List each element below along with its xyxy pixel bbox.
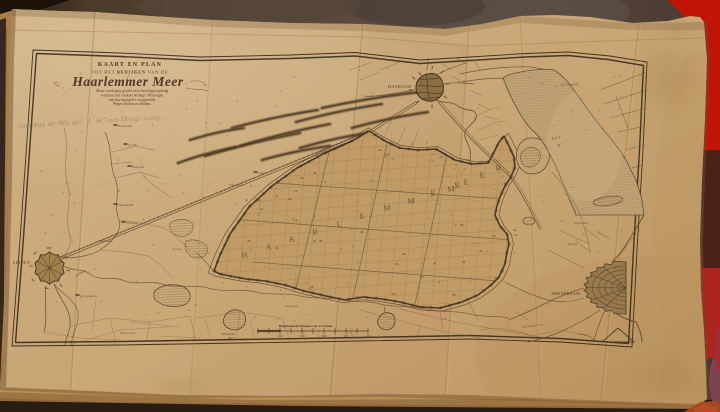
svg-text:11: 11: [245, 198, 249, 202]
svg-text:5000: 5000: [365, 335, 371, 338]
svg-text:34: 34: [310, 285, 314, 289]
svg-text:de Zilk: de Zilk: [128, 143, 138, 147]
svg-text:3000: 3000: [321, 335, 327, 338]
svg-text:44: 44: [275, 246, 279, 250]
svg-text:de Kaag: de Kaag: [172, 248, 182, 251]
svg-text:Haarlemmer Meer: Haarlemmer Meer: [71, 74, 184, 89]
svg-text:1000: 1000: [277, 335, 283, 338]
svg-text:14: 14: [294, 189, 298, 193]
svg-text:4: 4: [292, 217, 294, 221]
svg-text:Braassemer: Braassemer: [222, 333, 236, 336]
svg-text:41: 41: [462, 260, 466, 264]
svg-text:3: 3: [324, 180, 326, 184]
svg-text:Nieuwerkerk: Nieuwerkerk: [573, 222, 589, 225]
svg-text:11: 11: [514, 233, 518, 237]
svg-text:34: 34: [378, 148, 382, 152]
svg-text:11: 11: [260, 207, 264, 211]
svg-text:41: 41: [257, 198, 261, 202]
svg-text:Rhijnlandsche Roeden van 12 Vo: Rhijnlandsche Roeden van 12 Voeten.: [279, 324, 334, 328]
svg-text:44: 44: [460, 223, 464, 227]
svg-text:1: 1: [494, 276, 496, 280]
svg-text:11: 11: [466, 158, 470, 162]
svg-text:41: 41: [479, 249, 483, 253]
svg-text:Woubrugge: Woubrugge: [285, 305, 299, 308]
svg-text:4000: 4000: [343, 335, 349, 338]
svg-text:41: 41: [360, 230, 364, 234]
svg-text:M: M: [407, 196, 415, 206]
svg-text:4: 4: [385, 154, 387, 158]
svg-text:34: 34: [395, 262, 399, 266]
svg-text:3: 3: [370, 179, 372, 183]
svg-text:M: M: [383, 203, 391, 213]
svg-text:Meer: Meer: [227, 337, 235, 340]
svg-text:Lisse: Lisse: [258, 171, 265, 175]
svg-text:44: 44: [420, 275, 424, 279]
svg-text:Wegen Vaarten en Molens.: Wegen Vaarten en Molens.: [113, 102, 152, 106]
svg-text:34: 34: [439, 155, 443, 159]
svg-text:14: 14: [492, 234, 496, 238]
svg-text:AMSTERDAM: AMSTERDAM: [551, 291, 580, 296]
svg-text:de Leydsdorp: de Leydsdorp: [80, 294, 98, 298]
svg-text:HAARLEM: HAARLEM: [388, 84, 411, 89]
svg-text:Sassenheim: Sassenheim: [118, 203, 134, 207]
svg-text:waartusschen vierkant bevangt: waartusschen vierkant bevangt 100 morgen: [101, 93, 164, 97]
svg-text:Voorhout: Voorhout: [126, 221, 138, 225]
svg-text:44: 44: [288, 197, 292, 201]
svg-text:7: 7: [357, 209, 359, 213]
svg-text:7: 7: [502, 270, 504, 274]
svg-text:4: 4: [276, 194, 278, 198]
svg-text:7: 7: [426, 141, 428, 145]
svg-text:41: 41: [313, 239, 317, 243]
svg-text:4: 4: [433, 261, 435, 265]
svg-text:Rietwijk: Rietwijk: [567, 243, 578, 246]
svg-text:34: 34: [402, 252, 406, 256]
svg-text:Rijnsburg: Rijnsburg: [100, 239, 113, 243]
svg-text:1: 1: [455, 163, 457, 167]
svg-text:met bijvoeging der voorgesteld: met bijvoeging der voorgestelde: [109, 98, 156, 102]
svg-text:Lisser poel: Lisser poel: [230, 183, 244, 187]
svg-text:Noordwijk: Noordwijk: [118, 124, 132, 128]
svg-text:1: 1: [455, 223, 457, 227]
svg-text:2000: 2000: [299, 335, 305, 338]
svg-text:LEIDEN: LEIDEN: [13, 261, 30, 265]
svg-text:44: 44: [319, 239, 323, 243]
svg-text:34: 34: [247, 239, 251, 243]
svg-text:4: 4: [438, 280, 440, 284]
svg-text:41: 41: [513, 228, 517, 232]
svg-text:14: 14: [392, 292, 396, 296]
svg-text:14: 14: [294, 218, 298, 222]
svg-text:Alzoo voorloopig gesteld en in: Alzoo voorloopig gesteld en in kavelinge…: [96, 89, 169, 93]
svg-text:Hazerswoude: Hazerswoude: [119, 332, 136, 335]
svg-text:4: 4: [302, 159, 304, 163]
svg-text:M: M: [447, 184, 455, 194]
svg-text:KAART EN PLAN: KAART EN PLAN: [98, 62, 162, 68]
svg-text:4: 4: [250, 184, 252, 188]
svg-text:44: 44: [300, 176, 304, 180]
svg-text:41: 41: [313, 171, 317, 175]
